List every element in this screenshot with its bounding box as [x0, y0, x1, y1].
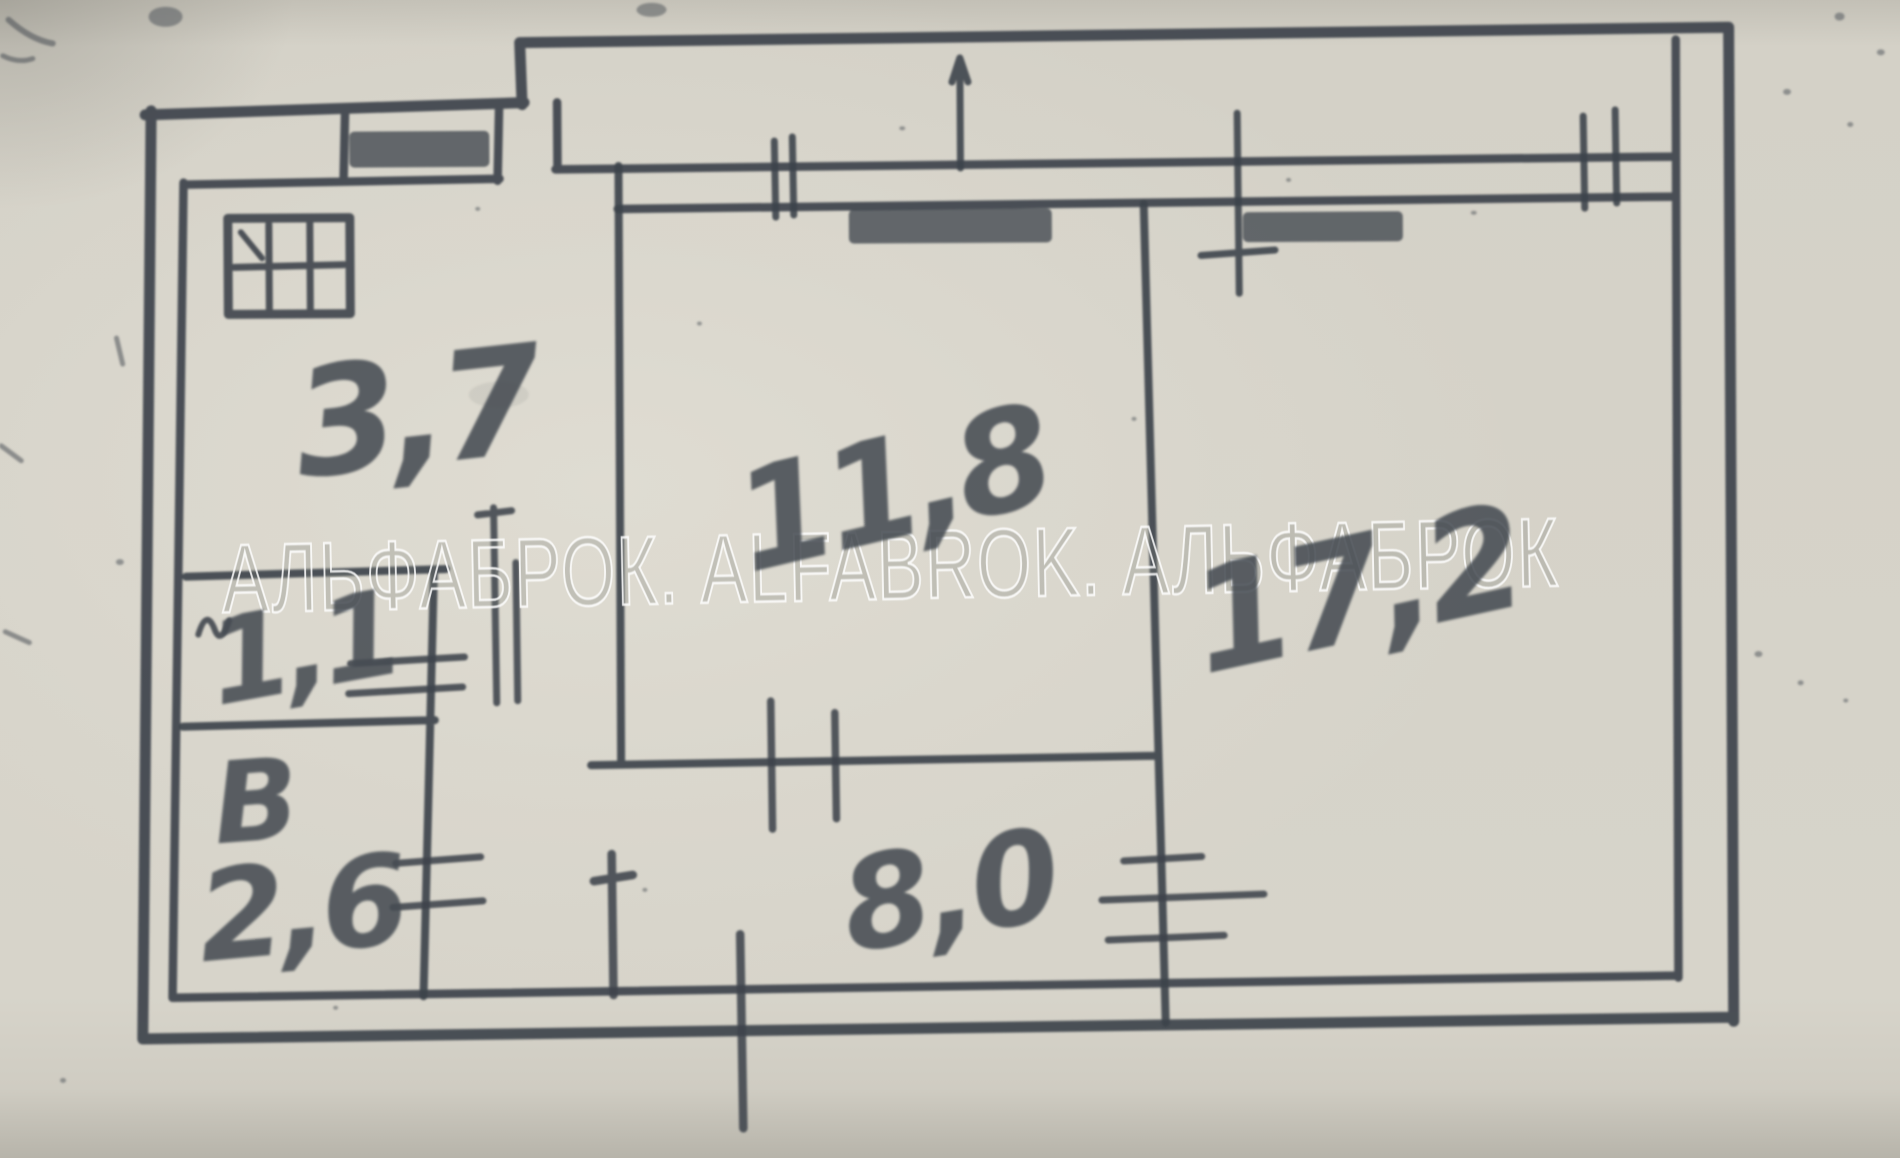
- bedroom-door-symbol: [1102, 856, 1265, 940]
- balcony-arrow-icon: [952, 58, 969, 168]
- room-area-kitchen: 3,7: [286, 325, 543, 501]
- bathroom-door-symbol: [393, 857, 483, 908]
- window-symbols: [349, 54, 1617, 299]
- room-area-bathroom: 2,6: [193, 837, 409, 982]
- window-sill: [349, 131, 489, 168]
- stove-icon: [228, 218, 351, 315]
- window-sill: [1243, 211, 1403, 242]
- floor-plan-photo: АЛЬФАБРОК. ALFABROK. АЛЬФАБРОК 3,7 1,1 В…: [0, 0, 1900, 1158]
- floor-plan: АЛЬФАБРОК. ALFABROK. АЛЬФАБРОК 3,7 1,1 В…: [0, 0, 1900, 1158]
- room-area-toilet: 1,1: [199, 573, 405, 723]
- window-sill: [849, 208, 1052, 243]
- room-area-hallway: 8,0: [833, 811, 1066, 972]
